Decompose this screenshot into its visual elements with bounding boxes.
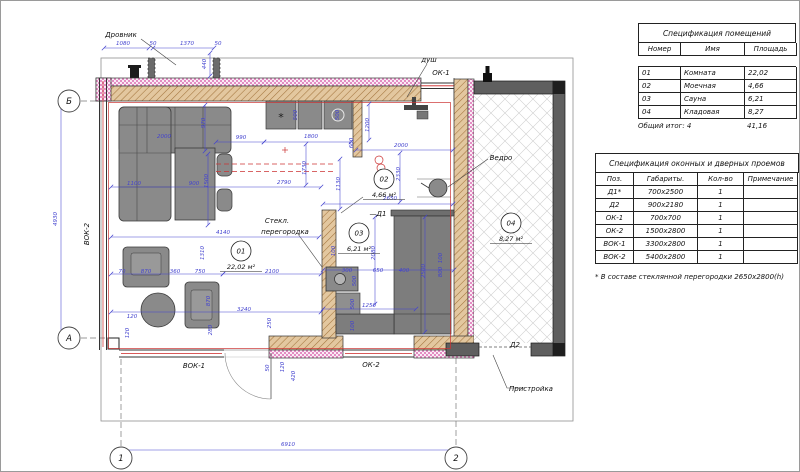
schedule-cell: 900x2180 bbox=[634, 199, 698, 212]
annex-wall-bottom bbox=[446, 343, 479, 356]
schedule-cell bbox=[744, 238, 798, 251]
schedule-cell: ОК-1 bbox=[596, 212, 634, 225]
timber-wall bbox=[96, 86, 421, 101]
dimension-text: 600 bbox=[349, 137, 355, 148]
schedule-cell: 6,21 bbox=[745, 93, 797, 106]
schedule-cell: 04 bbox=[639, 106, 681, 119]
insulation-band bbox=[96, 78, 421, 86]
dimension-text: 900 bbox=[189, 181, 200, 187]
dimension-text: 1500 bbox=[204, 174, 210, 188]
schedule-cell: Д1* bbox=[596, 186, 634, 199]
dimension-text: 500 bbox=[352, 275, 358, 286]
window-vok1 bbox=[119, 350, 224, 357]
dimension-text: 2790 bbox=[277, 180, 291, 186]
woodshed-leader bbox=[141, 39, 176, 65]
schedule-header-cell: Имя bbox=[681, 43, 745, 56]
dimension-text: 2100 bbox=[265, 269, 279, 275]
partition-leader bbox=[298, 234, 322, 267]
dimension-text: 870 bbox=[141, 269, 152, 275]
room-schedule-header: НомерИмяПлощадь bbox=[638, 42, 796, 56]
stove-mark: * bbox=[278, 111, 284, 124]
schedule-cell: Сауна bbox=[681, 93, 745, 106]
coffee-table bbox=[141, 293, 175, 327]
axis-label: Б bbox=[66, 97, 72, 107]
schedule-cell: 5400x2800 bbox=[634, 251, 698, 264]
dimension-text: 500 bbox=[293, 109, 299, 120]
schedule-cell: 1 bbox=[698, 225, 744, 238]
dimension-text: 970 bbox=[201, 117, 207, 128]
schedule-cell: 1 bbox=[698, 199, 744, 212]
dimension-text: 50 bbox=[150, 41, 157, 47]
room-number: 01 bbox=[237, 248, 246, 256]
timber-wall bbox=[454, 79, 468, 351]
dimension-text: 120 bbox=[125, 327, 131, 338]
dimension-text: 100 bbox=[438, 252, 444, 263]
schedule-cell: 22,02 bbox=[745, 67, 797, 80]
room-number: 03 bbox=[355, 230, 364, 238]
plan-label: Стекл. bbox=[265, 217, 289, 225]
openings-schedule-body: Д1*700x25001Д2900x21801ОК-1700x7001ОК-21… bbox=[595, 186, 799, 264]
dimension-text: 1370 bbox=[180, 41, 194, 47]
schedule-cell: Кладовая bbox=[681, 106, 745, 119]
dimension-text: 440 bbox=[202, 58, 208, 69]
dimension-text: 6910 bbox=[281, 442, 295, 448]
bucket-icon bbox=[429, 179, 447, 197]
openings-schedule-footnote: * В составе стеклянной перегородки 2650x… bbox=[595, 273, 799, 281]
bucket bbox=[417, 179, 451, 197]
insulation-band bbox=[269, 350, 343, 358]
door-d1-leaf bbox=[341, 197, 363, 213]
schedule-cell bbox=[744, 251, 798, 264]
plan-label: Дровник bbox=[104, 31, 137, 39]
entry-door bbox=[225, 353, 271, 399]
schedule-cell: ВОК-2 bbox=[596, 251, 634, 264]
dimension-text: 400 bbox=[399, 268, 410, 274]
dimension-text: 50 bbox=[215, 41, 222, 47]
schedule-cell bbox=[744, 186, 798, 199]
schedule-cell: ОК-2 bbox=[596, 225, 634, 238]
dimension-text: 4930 bbox=[53, 212, 59, 226]
dimension-text: 2000 bbox=[394, 143, 408, 149]
total-value: 41,16 bbox=[744, 122, 796, 130]
dimension-text: 2080 bbox=[371, 246, 377, 260]
openings-schedule-header: Поз.Габариты.Кол-воПримечание bbox=[595, 172, 799, 186]
plan-label: ВОК-2 bbox=[83, 222, 91, 245]
dimension-text: 990 bbox=[236, 135, 247, 141]
schedule-cell: Д2 bbox=[596, 199, 634, 212]
annex-wall-top bbox=[474, 81, 553, 94]
schedule-cell: 1 bbox=[698, 186, 744, 199]
schedule-cell: 1 bbox=[698, 238, 744, 251]
schedule-cell: 01 bbox=[639, 67, 681, 80]
schedule-cell: 3300x2800 bbox=[634, 238, 698, 251]
dimension-text: 100 bbox=[331, 245, 337, 256]
dimension-text: 3240 bbox=[237, 307, 251, 313]
annex-corner bbox=[553, 343, 565, 356]
dimension-text: 1800 bbox=[304, 134, 318, 140]
room-number: 04 bbox=[507, 220, 516, 228]
dimension-text: 420 bbox=[291, 370, 297, 381]
schedule-cell: 700x700 bbox=[634, 212, 698, 225]
dimension-text: 1250 bbox=[362, 303, 376, 309]
schedule-cell: 8,27 bbox=[745, 106, 797, 119]
chimney-icon bbox=[483, 66, 492, 82]
dimension-text: 650 bbox=[373, 268, 384, 274]
exterior-wall-right bbox=[454, 79, 474, 351]
dimension-text: 1100 bbox=[127, 181, 141, 187]
schedule-cell bbox=[744, 199, 798, 212]
dimension-text: 750 bbox=[195, 269, 206, 275]
window-vok2 bbox=[100, 78, 107, 350]
chair bbox=[217, 189, 232, 211]
schedule-header-cell: Габариты. bbox=[634, 173, 698, 186]
dimension-text: 1730 bbox=[302, 161, 308, 175]
annex-corner bbox=[553, 81, 565, 94]
schedule-cell: 4,66 bbox=[745, 80, 797, 93]
corner-post bbox=[108, 338, 119, 349]
exterior-wall-bottom bbox=[108, 336, 474, 358]
plan-label: душ bbox=[420, 56, 437, 64]
dimension-text: 2500 bbox=[421, 264, 427, 278]
schedule-cell: 1 bbox=[698, 212, 744, 225]
corner-insulation-block bbox=[96, 78, 111, 101]
schedule-cell bbox=[744, 225, 798, 238]
schedule-cell: 1 bbox=[698, 251, 744, 264]
schedule-cell bbox=[744, 212, 798, 225]
counter-unit bbox=[298, 101, 322, 129]
dimension-text: 2000 bbox=[157, 134, 171, 140]
axis-label: 1 bbox=[118, 454, 123, 464]
exterior-wall-top bbox=[96, 78, 421, 101]
schedule-header-cell: Номер bbox=[639, 43, 681, 56]
plan-label: Д2 bbox=[509, 341, 520, 349]
schedule-cell: 02 bbox=[639, 80, 681, 93]
window-ok2 bbox=[343, 350, 414, 357]
dimension-text: 360 bbox=[170, 269, 181, 275]
schedule-header-cell: Примечание bbox=[744, 173, 798, 186]
axis-label: А bbox=[65, 334, 72, 344]
dimension-text: 120 bbox=[280, 361, 286, 372]
schedule-header-cell: Кол-во bbox=[698, 173, 744, 186]
dimension-text: 500 bbox=[350, 298, 356, 309]
floor-plan-document: * bbox=[0, 0, 800, 472]
plan-label: перегородка bbox=[261, 228, 309, 236]
dimension-text: 1130 bbox=[336, 177, 342, 191]
dimension-text: 50 bbox=[265, 364, 271, 371]
dimension-text: 870 bbox=[206, 295, 212, 306]
chair bbox=[217, 154, 232, 176]
room-schedule-total: Общий итог: 4 41,16 bbox=[638, 119, 796, 130]
schedule-cell: 700x2500 bbox=[634, 186, 698, 199]
dimension-text: 500 bbox=[335, 109, 341, 120]
stove-heater bbox=[335, 274, 346, 285]
plan-label: ОК-1 bbox=[432, 69, 449, 77]
dimension-text: 280 bbox=[208, 324, 214, 335]
schedule-cell: ВОК-1 bbox=[596, 238, 634, 251]
schedule-cell: Моечная bbox=[681, 80, 745, 93]
axis-label: 2 bbox=[453, 454, 458, 464]
plan-label: ВОК-1 bbox=[183, 362, 205, 370]
plan-label: ОК-2 bbox=[362, 361, 380, 369]
dimension-text: 100 bbox=[350, 320, 356, 331]
annex-wall-right bbox=[553, 81, 565, 356]
schedule-header-cell: Площадь bbox=[745, 43, 797, 56]
openings-schedule-title: Спецификация оконных и дверных проемов bbox=[595, 153, 799, 172]
annex-leader bbox=[493, 355, 525, 388]
dimension-text: 1310 bbox=[200, 246, 206, 260]
room-number: 02 bbox=[380, 176, 389, 184]
schedule-cell: 1500x2800 bbox=[634, 225, 698, 238]
room-area-label: 8,27 м² bbox=[499, 235, 523, 243]
wall-washroom-sauna bbox=[391, 210, 454, 216]
dimension-text: 4140 bbox=[216, 230, 230, 236]
room-area-label: 4,66 м² bbox=[372, 191, 396, 199]
window-ok1 bbox=[421, 78, 454, 101]
dimension-text: 2330 bbox=[396, 167, 402, 181]
schedule-cell: 03 bbox=[639, 93, 681, 106]
plan-label: —Д1 bbox=[370, 210, 387, 218]
total-label: Общий итог: 4 bbox=[638, 122, 744, 130]
room-area-label: 22,02 м² bbox=[227, 263, 256, 271]
dimension-text: 1200 bbox=[365, 118, 371, 132]
annex-wall-bottom bbox=[531, 343, 553, 356]
schedule-header-cell: Поз. bbox=[596, 173, 634, 186]
dimension-text: 1080 bbox=[116, 41, 130, 47]
openings-schedule: Спецификация оконных и дверных проемов П… bbox=[595, 153, 799, 281]
insulation-band bbox=[468, 79, 474, 351]
dimension-text: 120 bbox=[127, 314, 138, 320]
room-schedule-body: 01Комната22,0202Моечная4,6603Сауна6,2104… bbox=[638, 66, 796, 119]
schedule-cell: Комната bbox=[681, 67, 745, 80]
room-schedule: Спецификация помещений НомерИмяПлощадь 0… bbox=[638, 23, 796, 130]
dimension-text: 800 bbox=[438, 266, 444, 277]
room-area-label: 6,21 м² bbox=[347, 245, 371, 253]
dimension-text: 250 bbox=[267, 317, 273, 328]
dimension-text: 300 bbox=[342, 268, 353, 274]
plan-label: Ведро bbox=[490, 154, 513, 162]
plan-label: Пристройка bbox=[509, 385, 553, 393]
room-schedule-title: Спецификация помещений bbox=[638, 23, 796, 42]
